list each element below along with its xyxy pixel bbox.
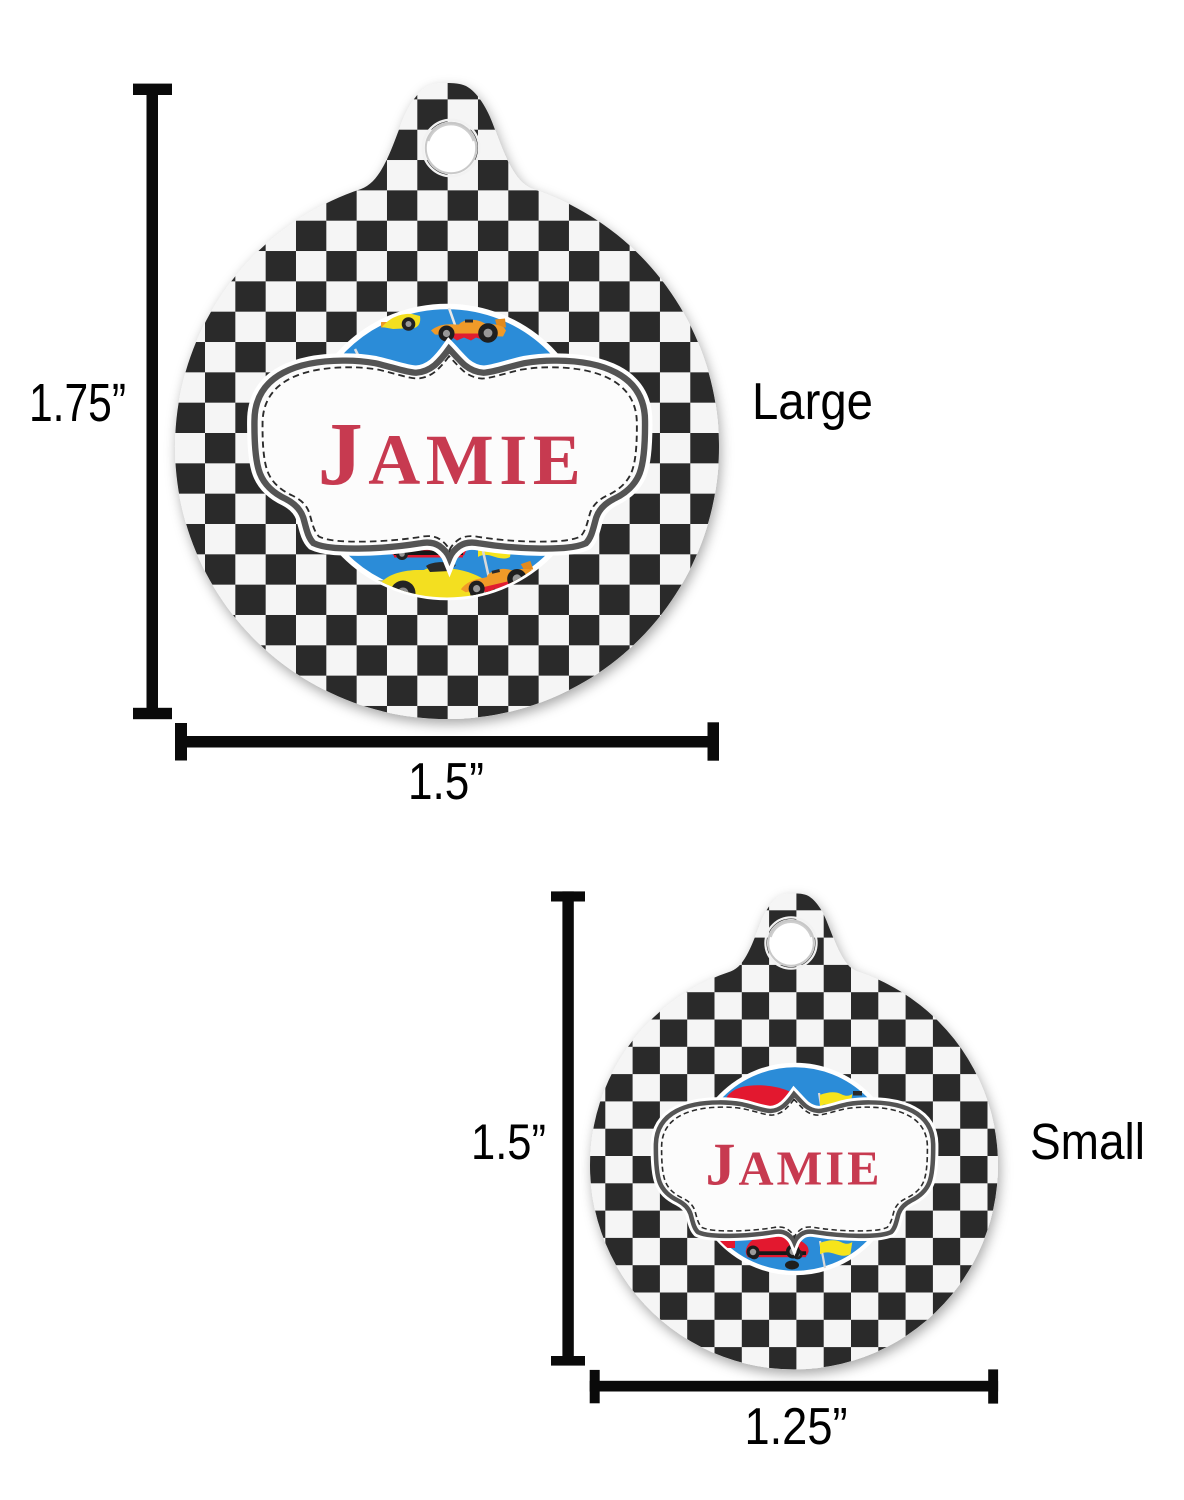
- svg-text:1.75”: 1.75”: [29, 373, 126, 433]
- svg-text:Small: Small: [1030, 1113, 1145, 1170]
- svg-text:1.5”: 1.5”: [471, 1114, 546, 1170]
- svg-text:1.5”: 1.5”: [408, 753, 484, 811]
- svg-text:Large: Large: [752, 373, 873, 431]
- svg-text:1.25”: 1.25”: [745, 1398, 848, 1456]
- svg-text:JAMIE: JAMIE: [318, 405, 587, 504]
